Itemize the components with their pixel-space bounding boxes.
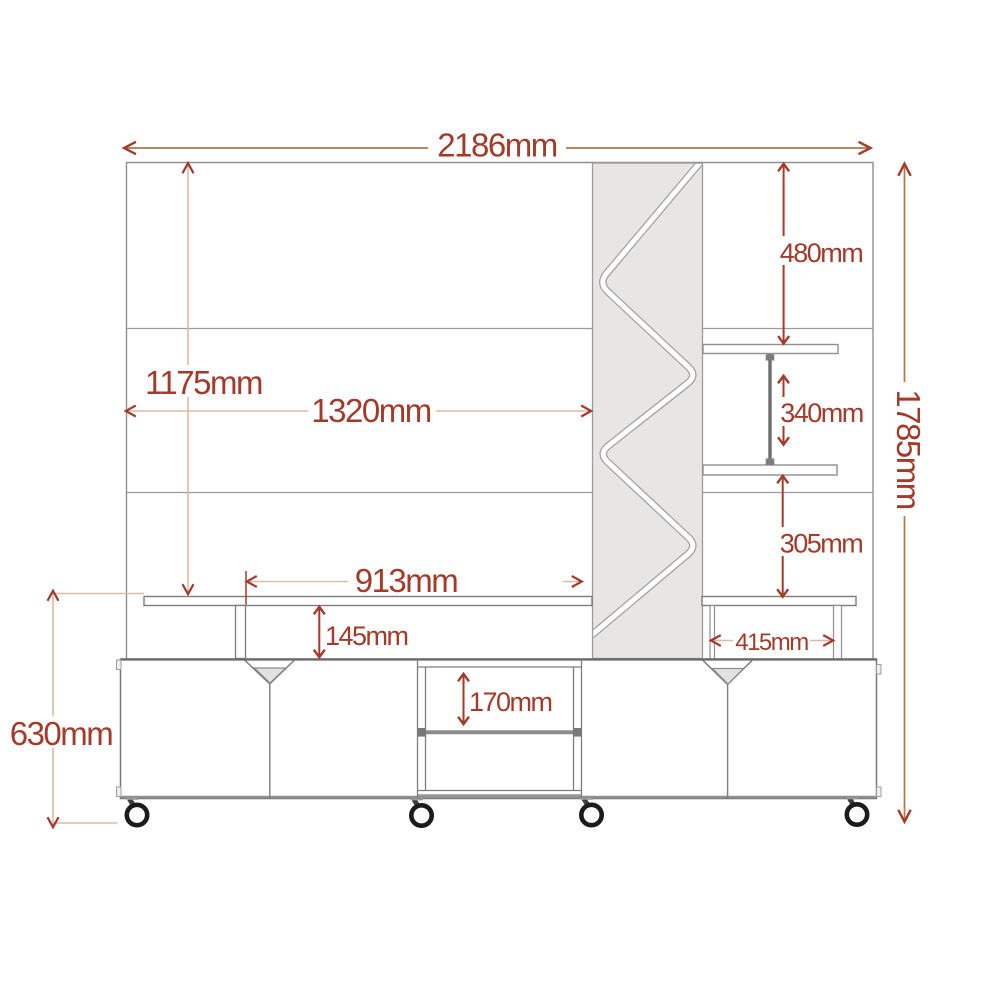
svg-text:480mm: 480mm <box>780 238 863 268</box>
svg-text:630mm: 630mm <box>10 715 113 752</box>
svg-text:305mm: 305mm <box>780 529 863 559</box>
svg-text:913mm: 913mm <box>355 562 458 599</box>
svg-text:170mm: 170mm <box>469 687 552 717</box>
svg-text:145mm: 145mm <box>325 621 408 651</box>
svg-text:1785mm: 1785mm <box>890 389 927 508</box>
svg-text:2186mm: 2186mm <box>437 127 556 164</box>
svg-text:1175mm: 1175mm <box>145 364 262 401</box>
svg-text:415mm: 415mm <box>735 629 808 656</box>
svg-text:1320mm: 1320mm <box>311 392 430 429</box>
svg-text:340mm: 340mm <box>780 398 863 428</box>
